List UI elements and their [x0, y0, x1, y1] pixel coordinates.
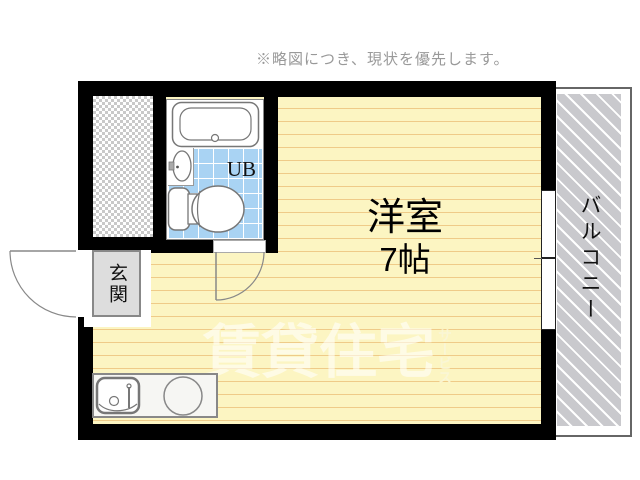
entrance-label: 玄関	[103, 263, 130, 305]
main-room-name: 洋室	[320, 196, 490, 240]
main-room-size: 7帖	[320, 240, 490, 280]
balcony-hatch-pattern: バルコニー	[557, 94, 621, 426]
washbasin-counter	[168, 148, 194, 186]
watermark: 賃貸住宅 サービス	[203, 320, 463, 392]
wall-ub-room-divider	[264, 96, 278, 253]
kitchen-sink-icon	[94, 375, 216, 416]
bathroom-door-swing-icon	[200, 238, 280, 308]
closet-hatched-area	[93, 96, 153, 237]
main-room-label: 洋室 7帖	[320, 196, 490, 280]
balcony-area: バルコニー	[552, 87, 632, 437]
bathtub-icon	[171, 101, 261, 149]
window-sash-divider	[542, 257, 555, 259]
wall-closet-ub-divider	[153, 96, 166, 253]
wall-top	[78, 81, 556, 97]
toilet-icon	[167, 183, 247, 235]
entrance-door-swing-icon	[5, 243, 100, 323]
unit-bath-area: UB	[166, 99, 264, 240]
unit-bath-label: UB	[227, 157, 256, 182]
disclaimer-note: ※略図につき、現状を優先します。	[256, 48, 576, 69]
balcony-label: バルコニー	[574, 194, 604, 324]
kitchen-counter	[92, 373, 218, 418]
window-tick-mark	[534, 258, 542, 259]
washbasin-icon	[168, 148, 194, 185]
balcony-window-symbol	[541, 190, 556, 330]
watermark-suffix: サービス	[435, 328, 455, 384]
stove-burner-icon	[164, 377, 202, 415]
floorplan-canvas: ※略図につき、現状を優先します。 バルコニー 賃貸住宅 サービス	[0, 0, 640, 480]
wall-bottom	[78, 424, 556, 440]
watermark-text: 賃貸住宅	[203, 320, 435, 386]
